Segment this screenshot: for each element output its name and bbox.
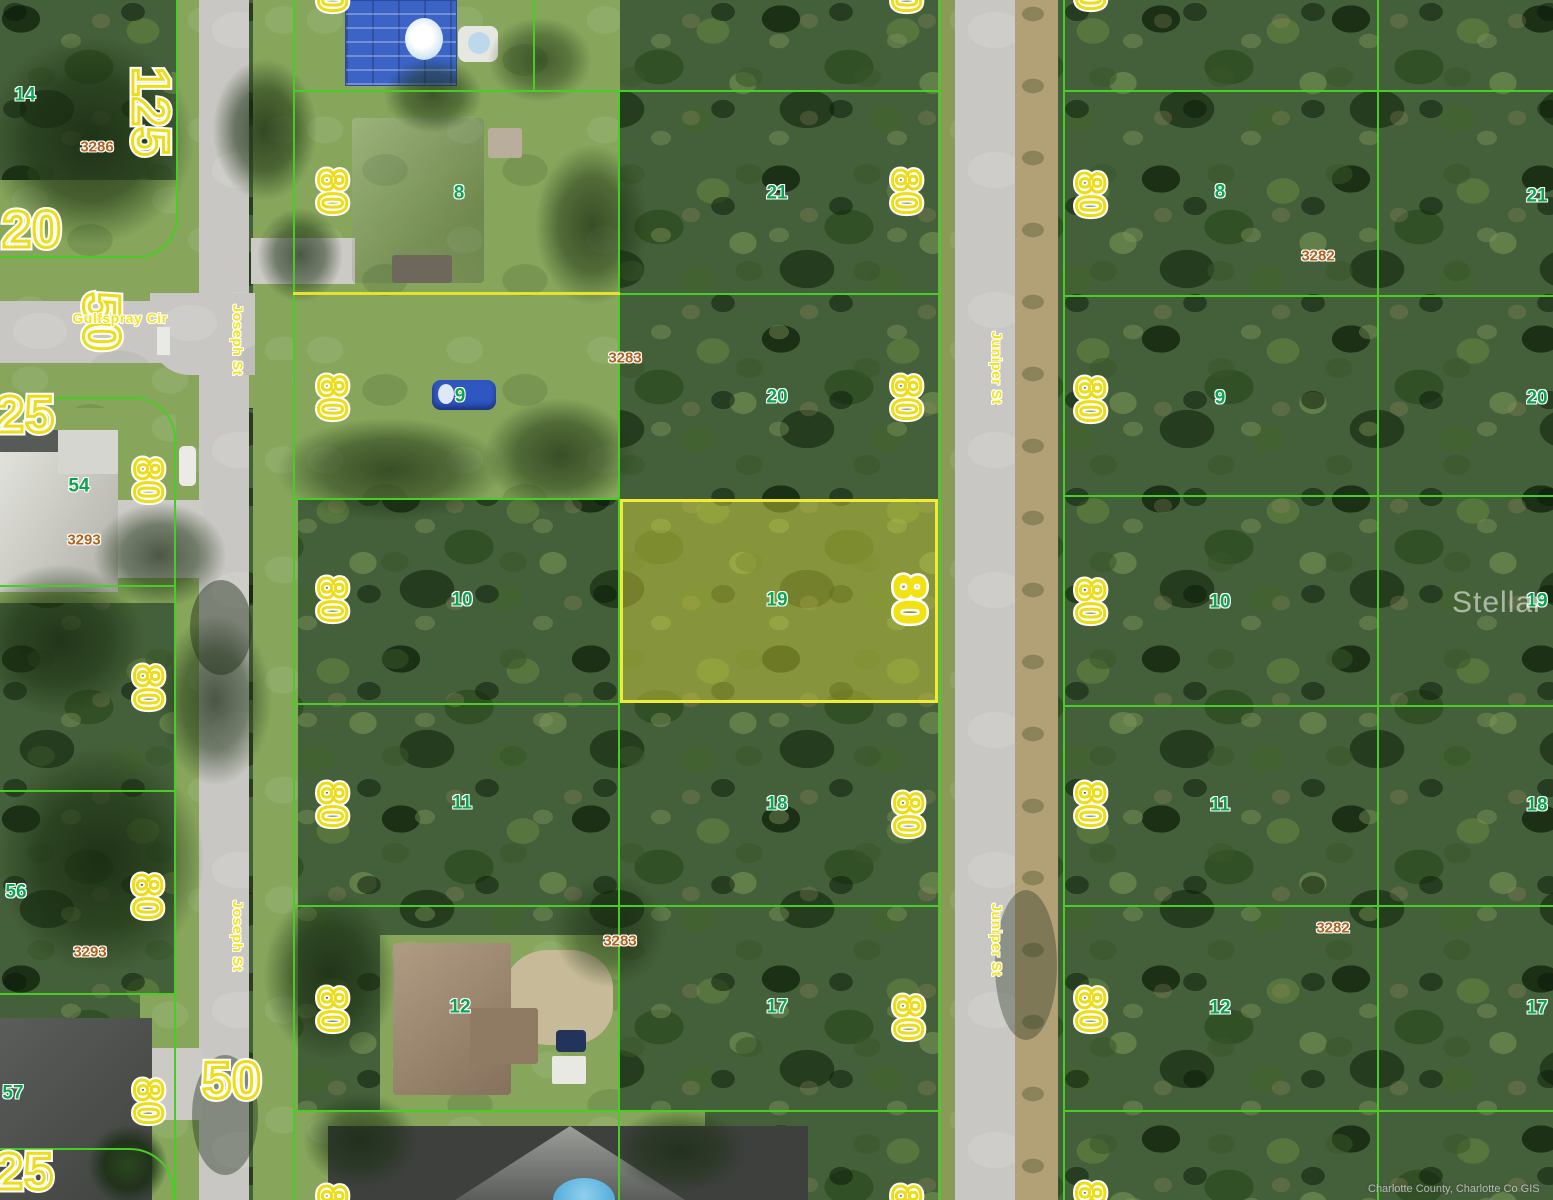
map-attribution: Charlotte County, Charlotte Co GIS xyxy=(1368,1183,1540,1195)
vehicle-windshield xyxy=(438,384,454,404)
dimension-label: 8080 xyxy=(1070,987,1110,1034)
dimension-label: 8080 xyxy=(312,577,352,624)
block-number-label: 3282 xyxy=(1301,249,1334,264)
parcel-line-yellow xyxy=(293,292,620,295)
parcel-line xyxy=(0,585,176,587)
dimension-label: 2020 xyxy=(2,204,62,256)
parcel-line xyxy=(293,905,941,907)
dimension-label: 8080 xyxy=(886,375,926,422)
parcel-line xyxy=(1063,905,1553,907)
crosswalk-stop-bar xyxy=(157,327,170,355)
lot-number-label: 20 xyxy=(1526,389,1547,408)
tree-canopy xyxy=(480,395,640,515)
parcel-line xyxy=(0,790,176,792)
tree-canopy xyxy=(260,885,400,1065)
dimension-label: 8080 xyxy=(127,874,167,921)
lot-number-label: 21 xyxy=(766,184,787,203)
swimming-pool xyxy=(405,18,443,60)
parcel-line xyxy=(618,293,941,295)
lot-number-label: 9 xyxy=(455,387,466,406)
house-wing-lot12 xyxy=(470,1008,538,1064)
street-name-label: Joseph St xyxy=(231,900,245,971)
parcel-line xyxy=(1063,90,1553,92)
street-name-label: Juniper St xyxy=(990,903,1004,976)
tree-canopy xyxy=(532,140,652,310)
parcel-line xyxy=(1063,705,1553,707)
dimension-label: 8080 xyxy=(1070,377,1110,424)
dimension-label: 8080 xyxy=(1070,782,1110,829)
lot-number-label: 54 xyxy=(68,477,89,496)
lot-number-label: 21 xyxy=(1526,187,1547,206)
dimension-label: 2525 xyxy=(0,1146,54,1198)
house-wing-lot8 xyxy=(392,255,452,283)
dimension-label: 8080 xyxy=(1070,0,1110,11)
lot-number-label: 17 xyxy=(766,998,787,1017)
parcel-line xyxy=(293,90,941,92)
dimension-label: 8080 xyxy=(1070,1182,1110,1200)
lot-number-label: 20 xyxy=(766,388,787,407)
parcel-line xyxy=(1063,1110,1553,1112)
lot-number-label: 17 xyxy=(1526,999,1547,1018)
lot-number-label: 11 xyxy=(452,794,472,813)
parcel-line xyxy=(533,0,535,90)
shed xyxy=(552,1056,586,1084)
dimension-label: 8080 xyxy=(128,665,168,712)
dimension-label: 8080 xyxy=(128,1079,168,1126)
lot-number-label: 12 xyxy=(1209,999,1230,1018)
parcel-line xyxy=(293,498,620,500)
parcel-line xyxy=(293,703,620,705)
lot-number-label: 12 xyxy=(449,998,470,1017)
lot-number-label: 19 xyxy=(766,591,787,610)
dimension-label: 8080 xyxy=(312,375,352,422)
tree-canopy xyxy=(610,1105,750,1195)
block-number-label: 3293 xyxy=(73,945,106,960)
lot-number-label: 11 xyxy=(1210,796,1230,815)
tree-canopy xyxy=(300,1090,420,1190)
dimension-label: 8080 xyxy=(312,987,352,1034)
dimension-label: 8080 xyxy=(312,782,352,829)
parcel-line xyxy=(1377,0,1379,1200)
dimension-label: 8080 xyxy=(886,0,926,13)
parcel-line xyxy=(1063,0,1065,1200)
dimension-label: 8080 xyxy=(312,0,352,13)
lot-number-label: 8 xyxy=(1215,183,1226,202)
dark-vehicle xyxy=(556,1030,586,1052)
street-name-label: Joseph St xyxy=(231,304,245,375)
lot-number-label: 10 xyxy=(1209,593,1230,612)
dimension-label: 8080 xyxy=(1070,579,1110,626)
lot-number-label: 14 xyxy=(14,86,35,105)
lot-number-label: 8 xyxy=(454,184,465,203)
block-number-label: 3286 xyxy=(80,140,113,155)
parcel-line xyxy=(293,1110,941,1112)
lot-number-label: 18 xyxy=(1526,796,1547,815)
block-number-label: 3282 xyxy=(1316,921,1349,936)
parcel-line xyxy=(939,0,941,1200)
dimension-label: 8080 xyxy=(312,1185,352,1200)
parcel-line xyxy=(293,0,295,1200)
dimension-label: 8080 xyxy=(1070,172,1110,219)
tree-canopy xyxy=(210,55,320,205)
stellar-mls-watermark: Stellar MLS xyxy=(1452,586,1553,620)
dimension-label: 8080 xyxy=(886,169,926,216)
parcel-line xyxy=(0,993,176,995)
dimension-label: 125125 xyxy=(124,67,176,157)
dimension-label: 5050 xyxy=(202,1055,262,1107)
lot-number-label: 9 xyxy=(1215,389,1226,408)
lot-number-label: 56 xyxy=(5,883,26,902)
tree-canopy xyxy=(381,55,485,135)
dimension-label: 2525 xyxy=(0,389,55,441)
shed xyxy=(488,128,522,158)
dimension-label: 8080 xyxy=(888,995,928,1042)
dimension-label: 8080 xyxy=(887,575,931,626)
dimension-label: 8080 xyxy=(888,792,928,839)
lot-number-label: 57 xyxy=(2,1084,23,1103)
lot-number-label: 18 xyxy=(766,795,787,814)
block-number-label: 3283 xyxy=(603,934,636,949)
dimension-label: 8080 xyxy=(128,458,168,505)
dimension-label: 8080 xyxy=(886,1185,926,1200)
block-number-label: 3283 xyxy=(608,351,641,366)
lot-number-label: 10 xyxy=(451,591,472,610)
street-name-label: Gulfspray Cir xyxy=(72,311,167,325)
tree-canopy xyxy=(255,205,345,305)
parcel-satellite-map: Stellar MLS Charlotte County, Charlotte … xyxy=(0,0,1553,1200)
tree-canopy xyxy=(550,870,670,990)
parcel-line xyxy=(1063,295,1553,297)
dimension-label: 8080 xyxy=(312,169,352,216)
parcel-line xyxy=(1063,495,1553,497)
block-number-label: 3293 xyxy=(67,533,100,548)
street-name-label: Juniper St xyxy=(990,331,1004,404)
tree-canopy xyxy=(270,415,510,525)
white-car xyxy=(179,446,196,486)
